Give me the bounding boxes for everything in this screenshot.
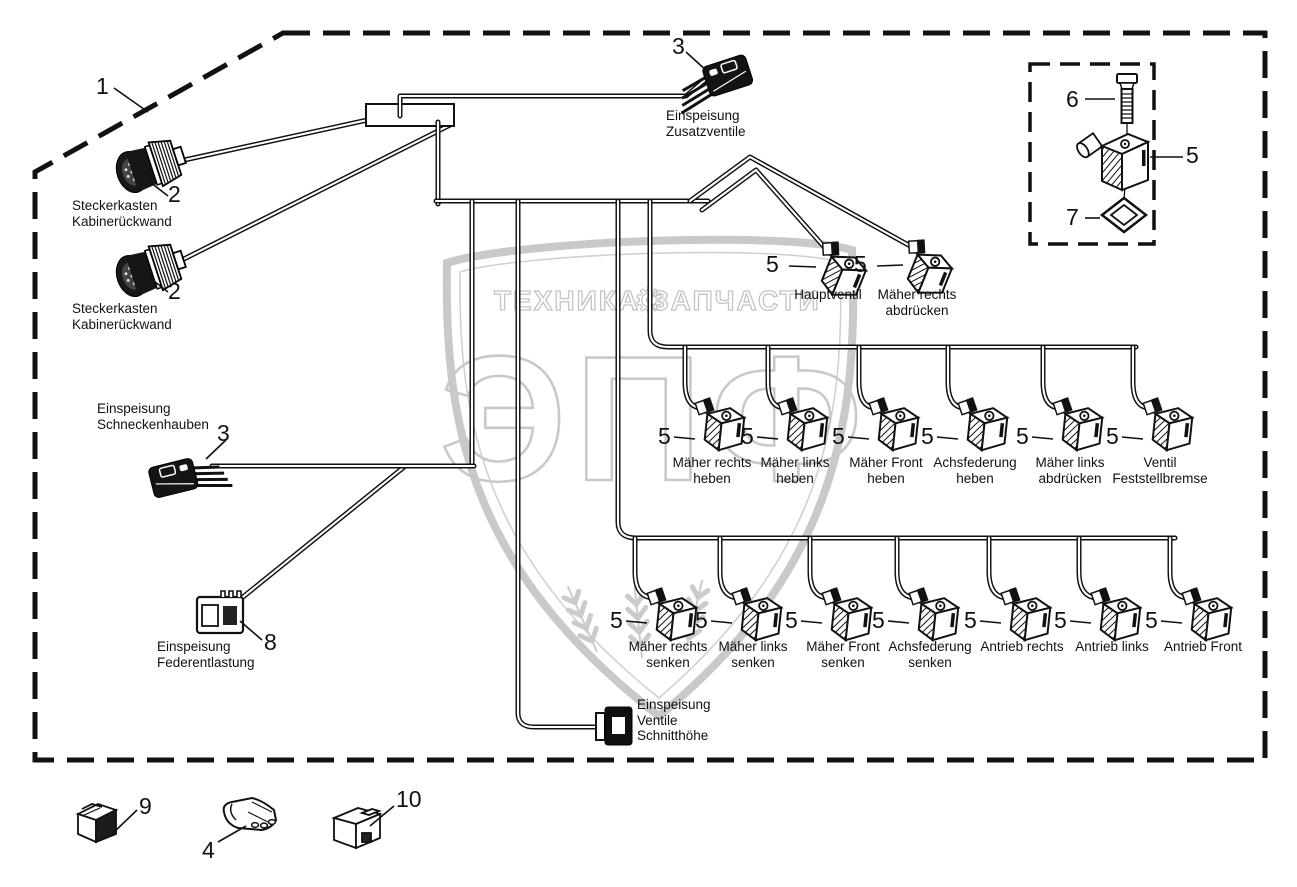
- cable-drop-bot-4: [897, 538, 914, 598]
- valve-connector-bot-5: [996, 586, 1052, 643]
- cable-drop-mid-5: [1043, 347, 1058, 408]
- callout-bot-1: 5: [610, 608, 623, 632]
- callout-bot-3: 5: [785, 608, 798, 632]
- label-steckerkasten-a: SteckerkastenKabinerückwand: [72, 198, 172, 229]
- callout-mid-4: 5: [921, 424, 934, 448]
- callout-schneckenhauben: 3: [217, 421, 230, 445]
- cable-drop-bot-5: [989, 538, 1006, 598]
- part9-connector: [78, 804, 116, 842]
- callout-bot-2: 5: [695, 608, 708, 632]
- kit-valve-connector: [1075, 133, 1148, 190]
- callout-bot-6: 5: [1054, 608, 1067, 632]
- cable-drop-bot-2: [720, 538, 737, 598]
- callout-part4: 4: [202, 838, 215, 862]
- callout-kit-valve: 5: [1186, 143, 1199, 167]
- valve-connector-bot-4: [904, 586, 960, 643]
- valve-connector-mid-3: [864, 396, 920, 453]
- callout-bot-4: 5: [872, 608, 885, 632]
- seal: [1102, 198, 1146, 232]
- callout-part10: 10: [396, 787, 422, 811]
- label-schneckenhauben: EinspeisungSchneckenhauben: [97, 401, 209, 432]
- part10-connector: [334, 808, 380, 848]
- callout-mid-2: 5: [741, 424, 754, 448]
- cable-to-abdruecken: [690, 157, 912, 247]
- label-schnitthoehe: EinspeisungVentileSchnitthöhe: [637, 697, 711, 744]
- callout-harness: 1: [96, 74, 109, 98]
- callout-steckerkasten-b: 2: [168, 279, 181, 303]
- callout-bot-5: 5: [964, 608, 977, 632]
- cable-drop-bot-3: [810, 538, 827, 598]
- callout-kit-seal: 7: [1066, 205, 1079, 229]
- part4-connector: [224, 798, 276, 830]
- cable-drop-mid-4: [948, 347, 963, 408]
- label-mid-6: VentilFeststellbremse: [1098, 455, 1222, 486]
- label-steckerkasten-b: SteckerkastenKabinerückwand: [72, 301, 172, 332]
- cable-federentlastung: [238, 467, 404, 601]
- screw: [1117, 74, 1137, 123]
- parts-diagram-page: { "watermark": { "brand_left": "ТЕХНИКА"…: [0, 0, 1297, 887]
- valve-connector-mid-6: [1138, 396, 1194, 453]
- callout-federentlastung: 8: [264, 630, 277, 654]
- cable-drop-bot-7: [1170, 538, 1187, 598]
- schnitthoehe-connector: [596, 707, 632, 745]
- callout-maeher-rechts-abdruecken: 5: [854, 252, 867, 276]
- diagram-canvas: ТЕХНИКА ⚙ ЗАПЧАСТИ ЭПФ: [0, 0, 1297, 887]
- cable-drop-mid-6: [1133, 347, 1148, 408]
- label-bot-7: Antrieb Front: [1141, 639, 1265, 655]
- valve-connector-bot-6: [1086, 586, 1142, 643]
- label-federentlastung: EinspeisungFederentlastung: [157, 639, 255, 670]
- callout-zusatzventile: 3: [672, 34, 685, 58]
- zusatzventile-connector: [670, 54, 756, 113]
- callout-mid-3: 5: [832, 424, 845, 448]
- callout-hauptventil: 5: [766, 252, 779, 276]
- valve-connector-bot-3: [817, 586, 873, 643]
- label-maeher-rechts-abdruecken: Mäher rechtsabdrücken: [857, 287, 977, 318]
- cable-drop-bot-1: [635, 538, 652, 598]
- cable-steckerkasten-b: [166, 124, 452, 268]
- callout-mid-1: 5: [658, 424, 671, 448]
- callout-mid-6: 5: [1106, 424, 1119, 448]
- callout-bot-7: 5: [1145, 608, 1158, 632]
- label-zusatzventile: EinspeisungZusatzventile: [666, 108, 746, 139]
- valve-connector-bot-7: [1177, 586, 1233, 643]
- valve-connector-mid-4: [953, 396, 1009, 453]
- federentlastung-connector: [197, 591, 243, 633]
- callout-part9: 9: [139, 794, 152, 818]
- splice-block: [366, 104, 454, 126]
- cable-drop-bot-6: [1079, 538, 1096, 598]
- valve-connector-mid-5: [1048, 396, 1104, 453]
- schneckenhauben-connector: [148, 450, 233, 505]
- callout-mid-5: 5: [1016, 424, 1029, 448]
- callout-kit-screw: 6: [1066, 87, 1079, 111]
